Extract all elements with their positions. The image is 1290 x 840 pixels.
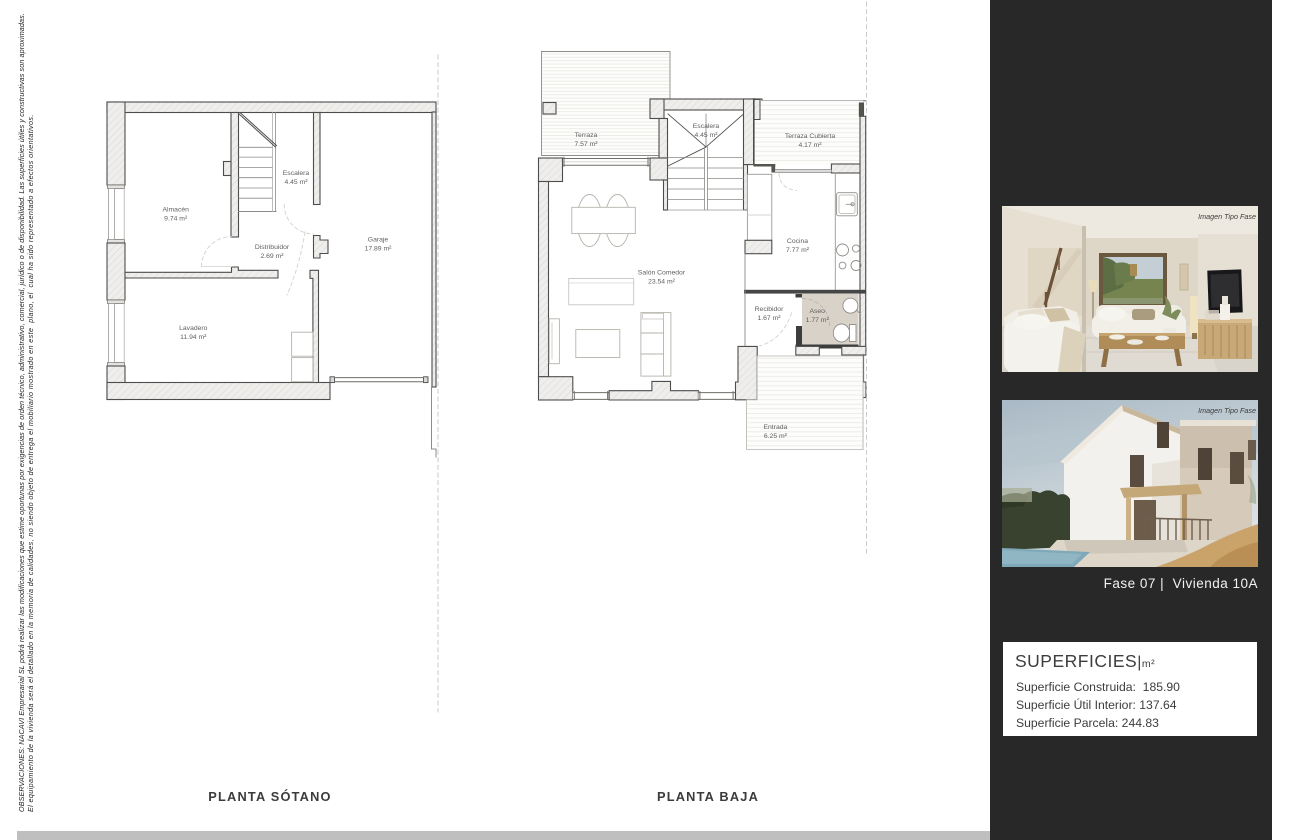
svg-text:11.94 m²: 11.94 m² bbox=[180, 334, 207, 341]
svg-text:Salón Comedor: Salón Comedor bbox=[638, 270, 686, 277]
svg-text:Garaje: Garaje bbox=[368, 237, 389, 244]
svg-text:7.77 m²: 7.77 m² bbox=[786, 247, 810, 254]
svg-text:Imagen Tipo Fase: Imagen Tipo Fase bbox=[1198, 212, 1256, 221]
svg-text:Imagen Tipo Fase: Imagen Tipo Fase bbox=[1198, 406, 1256, 415]
svg-text:2.69 m²: 2.69 m² bbox=[260, 253, 284, 260]
svg-text:Distribuidor: Distribuidor bbox=[255, 244, 290, 251]
svg-text:Terraza: Terraza bbox=[575, 132, 598, 139]
svg-text:4.17 m²: 4.17 m² bbox=[798, 142, 822, 149]
svg-text:Cocina: Cocina bbox=[787, 238, 808, 245]
svg-text:9.74 m²: 9.74 m² bbox=[164, 216, 188, 223]
svg-text:23.54 m²: 23.54 m² bbox=[648, 279, 676, 286]
svg-text:4.45 m²: 4.45 m² bbox=[284, 179, 308, 186]
svg-text:Recibidor: Recibidor bbox=[755, 306, 784, 313]
svg-text:Lavadero: Lavadero bbox=[179, 325, 208, 332]
svg-text:17.89 m²: 17.89 m² bbox=[365, 246, 393, 253]
svg-text:1.67 m²: 1.67 m² bbox=[757, 315, 781, 322]
svg-text:Entrada: Entrada bbox=[763, 424, 787, 431]
svg-text:Escalera: Escalera bbox=[693, 123, 720, 130]
svg-text:Aseo: Aseo bbox=[809, 308, 825, 315]
svg-text:Almacén: Almacén bbox=[162, 207, 189, 214]
svg-text:Escalera: Escalera bbox=[283, 170, 310, 177]
svg-text:1.77 m²: 1.77 m² bbox=[806, 317, 830, 324]
svg-text:4.45 m²: 4.45 m² bbox=[694, 132, 718, 139]
svg-text:6.25 m²: 6.25 m² bbox=[764, 433, 788, 440]
svg-text:7.57 m²: 7.57 m² bbox=[574, 141, 598, 148]
svg-text:Terraza Cubierta: Terraza Cubierta bbox=[785, 133, 835, 140]
